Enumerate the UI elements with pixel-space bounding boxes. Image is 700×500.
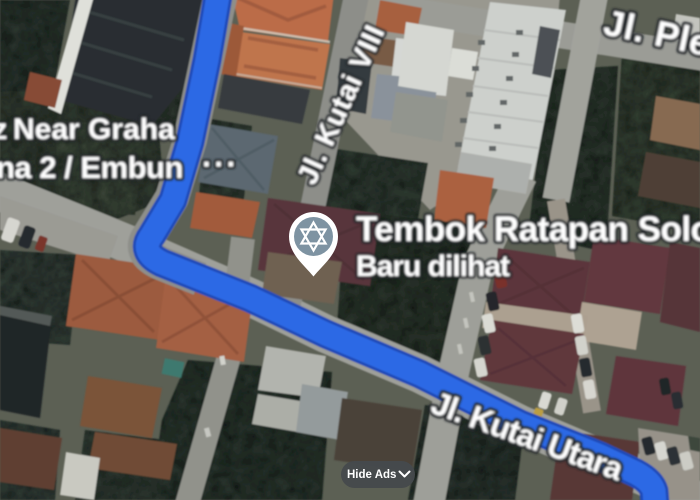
svg-text:···: ···: [202, 146, 238, 182]
svg-text:uz: uz: [0, 113, 7, 146]
svg-text:Tembok Ratapan Solo: Tembok Ratapan Solo: [356, 210, 700, 249]
svg-text:Near Graha: Near Graha: [13, 113, 175, 146]
svg-text:na 2 / Embun: na 2 / Embun: [0, 150, 183, 185]
svg-text:Baru dilihat: Baru dilihat: [356, 250, 510, 283]
svg-text:Hide Ads: Hide Ads: [347, 469, 396, 481]
